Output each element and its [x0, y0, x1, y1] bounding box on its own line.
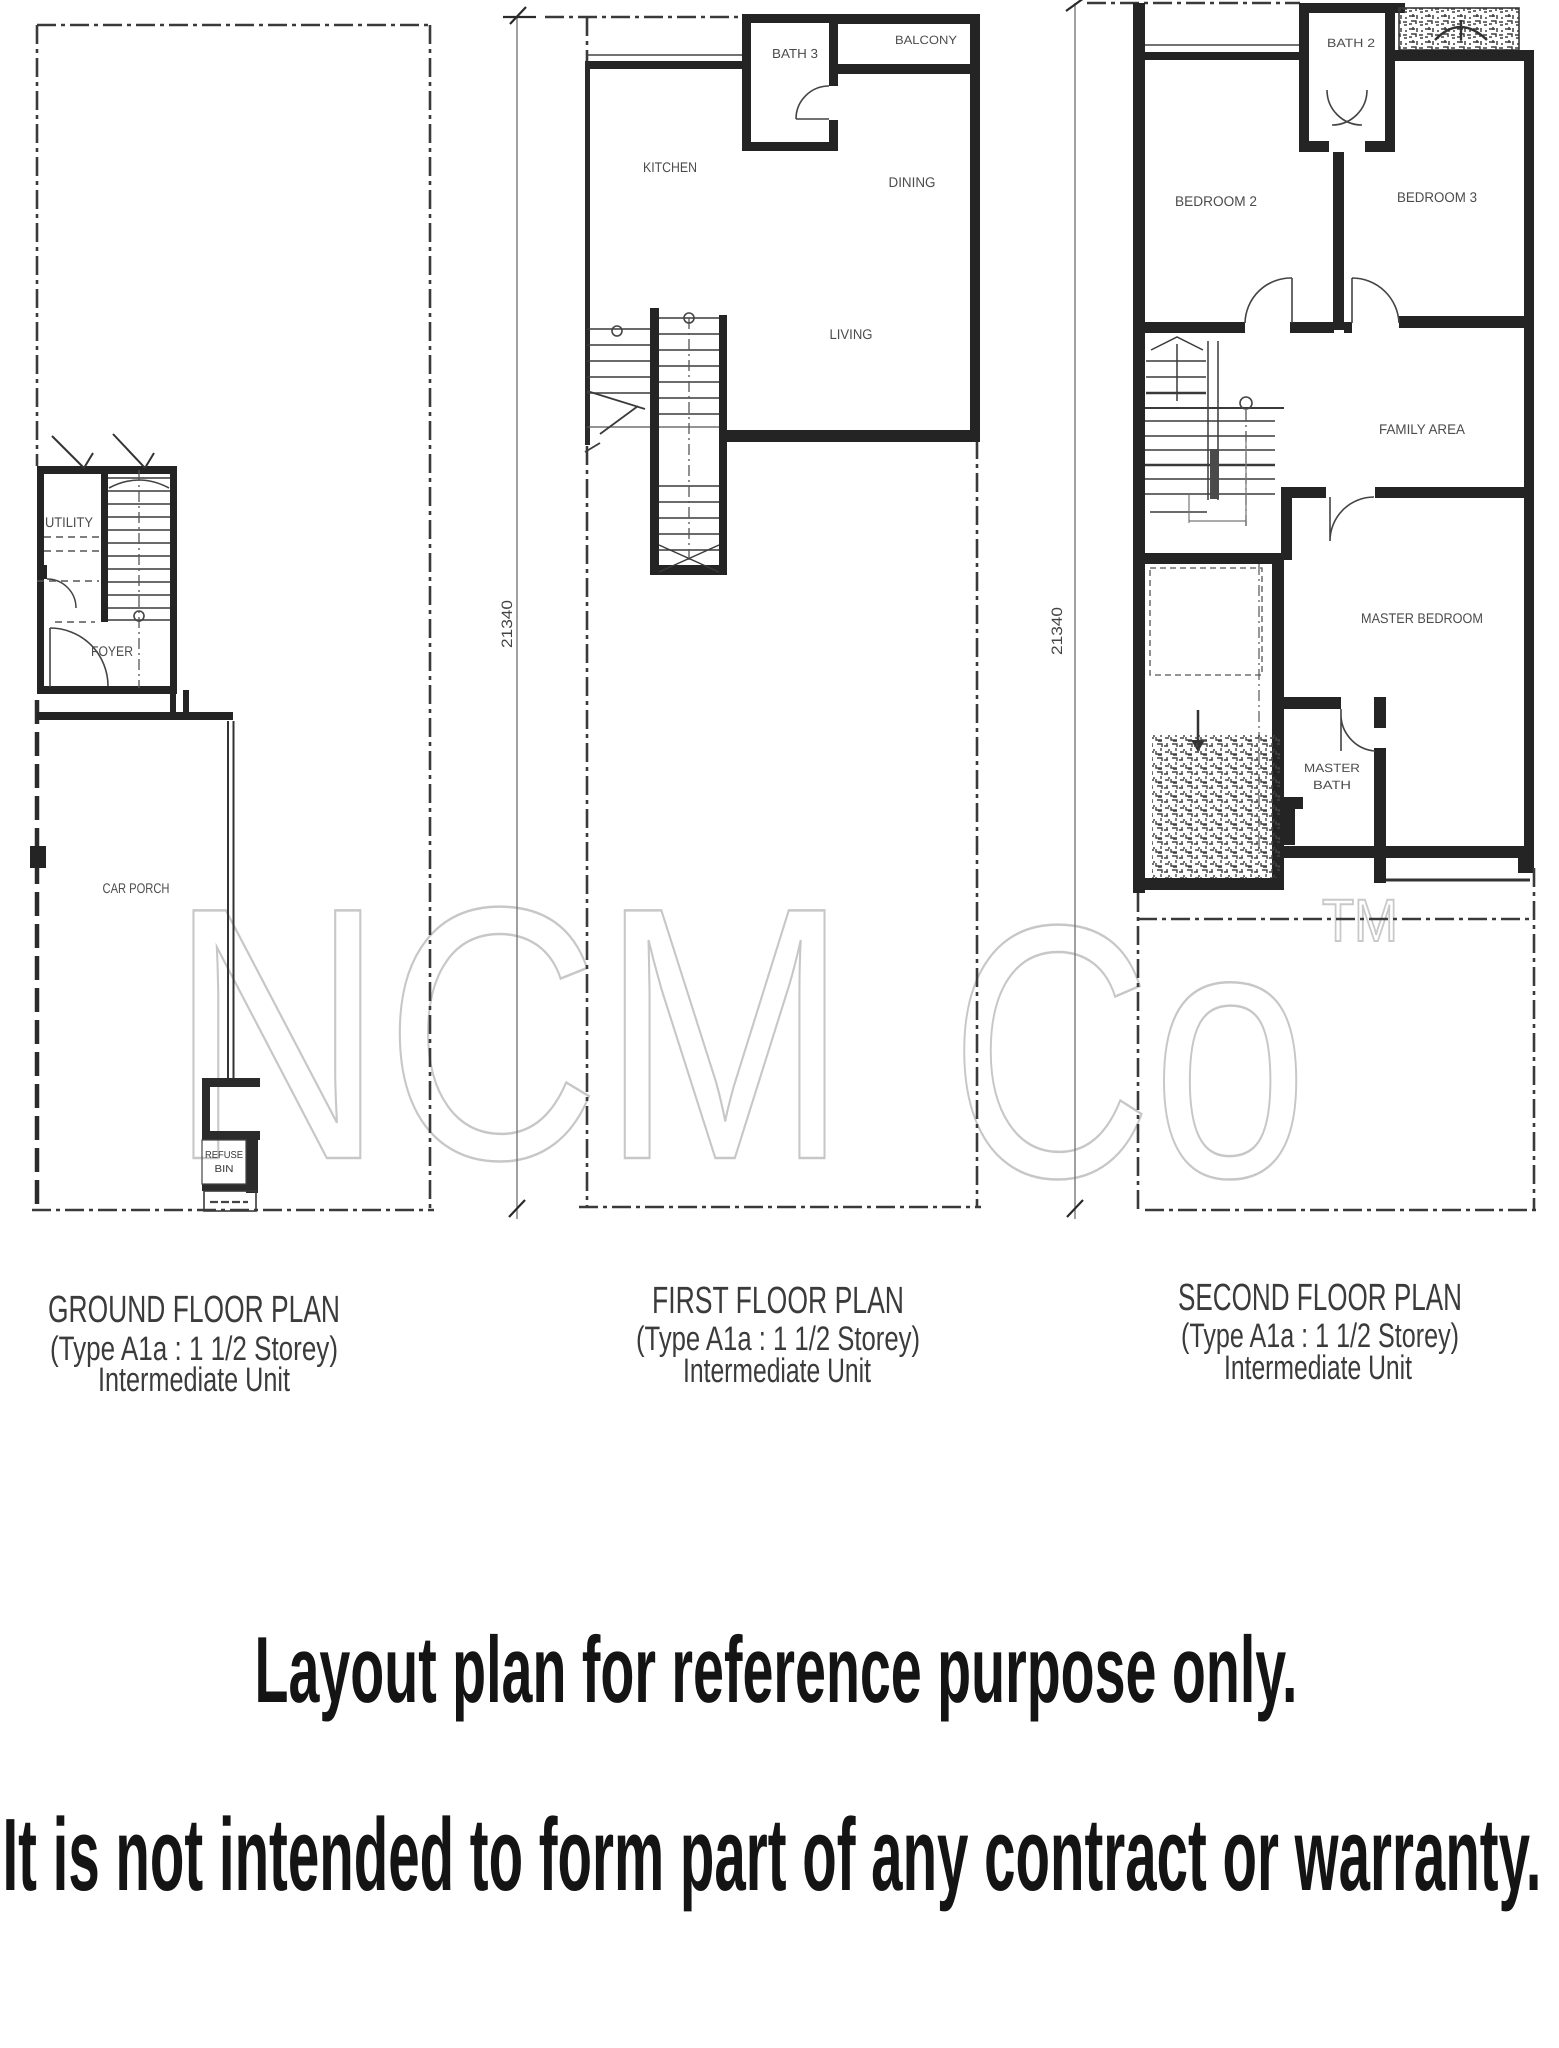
svg-text:MASTER BEDROOM: MASTER BEDROOM — [1361, 610, 1483, 626]
svg-text:BEDROOM 2: BEDROOM 2 — [1175, 193, 1257, 209]
svg-text:CAR PORCH: CAR PORCH — [103, 880, 170, 896]
svg-text:Intermediate Unit: Intermediate Unit — [1224, 1349, 1412, 1387]
svg-text:SECOND FLOOR PLAN: SECOND FLOOR PLAN — [1178, 1277, 1462, 1319]
svg-text:BATH 3: BATH 3 — [772, 46, 818, 61]
svg-text:TM: TM — [1322, 887, 1398, 954]
svg-text:FOYER: FOYER — [91, 643, 133, 659]
svg-text:BEDROOM 3: BEDROOM 3 — [1397, 189, 1477, 205]
svg-text:FIRST FLOOR PLAN: FIRST FLOOR PLAN — [652, 1280, 904, 1322]
svg-text:NCM: NCM — [169, 833, 849, 1235]
svg-text:KITCHEN: KITCHEN — [643, 159, 697, 175]
svg-text:It is not intended to form par: It is not intended to form part of any c… — [3, 1797, 1542, 1912]
svg-text:Intermediate Unit: Intermediate Unit — [98, 1361, 290, 1399]
svg-text:Intermediate Unit: Intermediate Unit — [683, 1352, 871, 1390]
svg-text:BIN: BIN — [215, 1164, 234, 1175]
svg-text:DINING: DINING — [889, 174, 936, 190]
svg-text:Layout plan for reference purp: Layout plan for reference purpose only. — [255, 1617, 1298, 1722]
svg-text:BATH: BATH — [1313, 778, 1351, 792]
svg-text:BALCONY: BALCONY — [895, 33, 957, 47]
svg-text:MASTER: MASTER — [1304, 761, 1360, 775]
svg-text:21340: 21340 — [499, 600, 516, 648]
svg-text:Co: Co — [950, 851, 1308, 1253]
svg-text:REFUSE: REFUSE — [205, 1150, 243, 1161]
svg-text:GROUND FLOOR PLAN: GROUND FLOOR PLAN — [48, 1289, 340, 1331]
svg-text:UTILITY: UTILITY — [45, 514, 94, 530]
svg-text:LIVING: LIVING — [830, 326, 873, 342]
svg-text:BATH 2: BATH 2 — [1327, 36, 1375, 50]
svg-text:21340: 21340 — [1049, 607, 1066, 655]
svg-text:FAMILY AREA: FAMILY AREA — [1379, 421, 1466, 437]
